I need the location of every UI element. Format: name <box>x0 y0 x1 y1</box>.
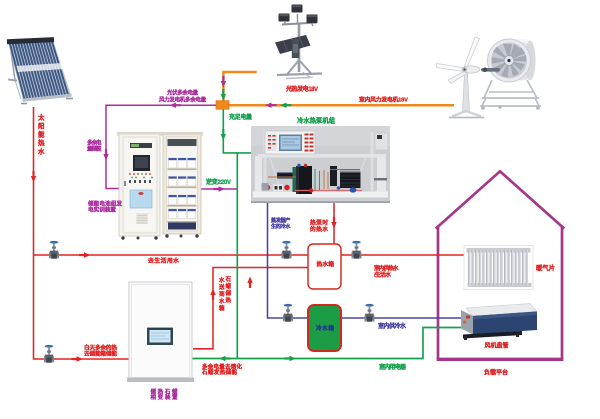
svg-text:石蜡发热储能: 石蜡发热储能 <box>201 368 237 376</box>
svg-text:热水箱: 热水箱 <box>317 260 335 268</box>
svg-text:热: 热 <box>226 296 232 304</box>
svg-text:白天多余的热: 白天多余的热 <box>84 344 117 352</box>
svg-text:送: 送 <box>218 283 225 291</box>
svg-text:太: 太 <box>37 113 45 122</box>
svg-text:储: 储 <box>225 289 232 297</box>
svg-text:风力发电机多余电量: 风力发电机多余电量 <box>159 96 207 104</box>
svg-text:充足电量: 充足电量 <box>229 113 252 121</box>
svg-text:风机盘管: 风机盘管 <box>485 342 509 350</box>
svg-text:多余电: 多余电 <box>87 139 102 147</box>
svg-text:室内供热水: 室内供热水 <box>374 264 399 272</box>
svg-text:箱: 箱 <box>219 304 225 312</box>
svg-text:水: 水 <box>38 147 45 156</box>
svg-text:石: 石 <box>225 276 232 283</box>
svg-text:暖气片: 暖气片 <box>536 263 555 272</box>
svg-text:冷水热泵机组: 冷水热泵机组 <box>297 116 336 125</box>
svg-text:蜡: 蜡 <box>226 282 232 290</box>
svg-text:水: 水 <box>219 297 225 305</box>
svg-text:室内风力发电机18V: 室内风力发电机18V <box>359 96 408 104</box>
svg-text:室内供冷水: 室内供冷水 <box>378 322 407 330</box>
svg-text:量储能: 量储能 <box>87 145 102 153</box>
svg-text:负载平台: 负载平台 <box>484 369 508 377</box>
svg-text:阳: 阳 <box>38 121 45 130</box>
svg-text:能: 能 <box>38 130 45 139</box>
svg-text:多余电量去熔化: 多余电量去熔化 <box>202 362 242 370</box>
svg-text:储能电池组发: 储能电池组发 <box>87 200 122 208</box>
svg-text:电实训装置: 电实训装置 <box>88 206 116 214</box>
svg-text:冷水箱: 冷水箱 <box>316 324 334 332</box>
svg-text:热: 热 <box>38 138 45 147</box>
svg-text:生的冷水: 生的冷水 <box>271 222 291 230</box>
svg-text:/生活水: /生活水 <box>374 271 391 279</box>
svg-text:光热发电18V: 光热发电18V <box>285 85 318 93</box>
svg-text:室内用电器: 室内用电器 <box>379 363 407 371</box>
svg-text:水: 水 <box>219 276 225 284</box>
svg-text:光伏多余电量: 光伏多余电量 <box>166 89 199 97</box>
svg-text:去生活用水: 去生活用水 <box>148 256 179 264</box>
svg-text:逆变220V: 逆变220V <box>206 178 231 186</box>
svg-text:相变装置: 相变装置 <box>151 393 178 401</box>
svg-text:蒸发器产: 蒸发器产 <box>270 216 291 224</box>
svg-text:去储能箱储能: 去储能箱储能 <box>84 349 117 357</box>
svg-text:的热水: 的热水 <box>310 225 328 233</box>
svg-text:到: 到 <box>219 290 225 298</box>
svg-text:热泵时: 热泵时 <box>310 219 328 227</box>
